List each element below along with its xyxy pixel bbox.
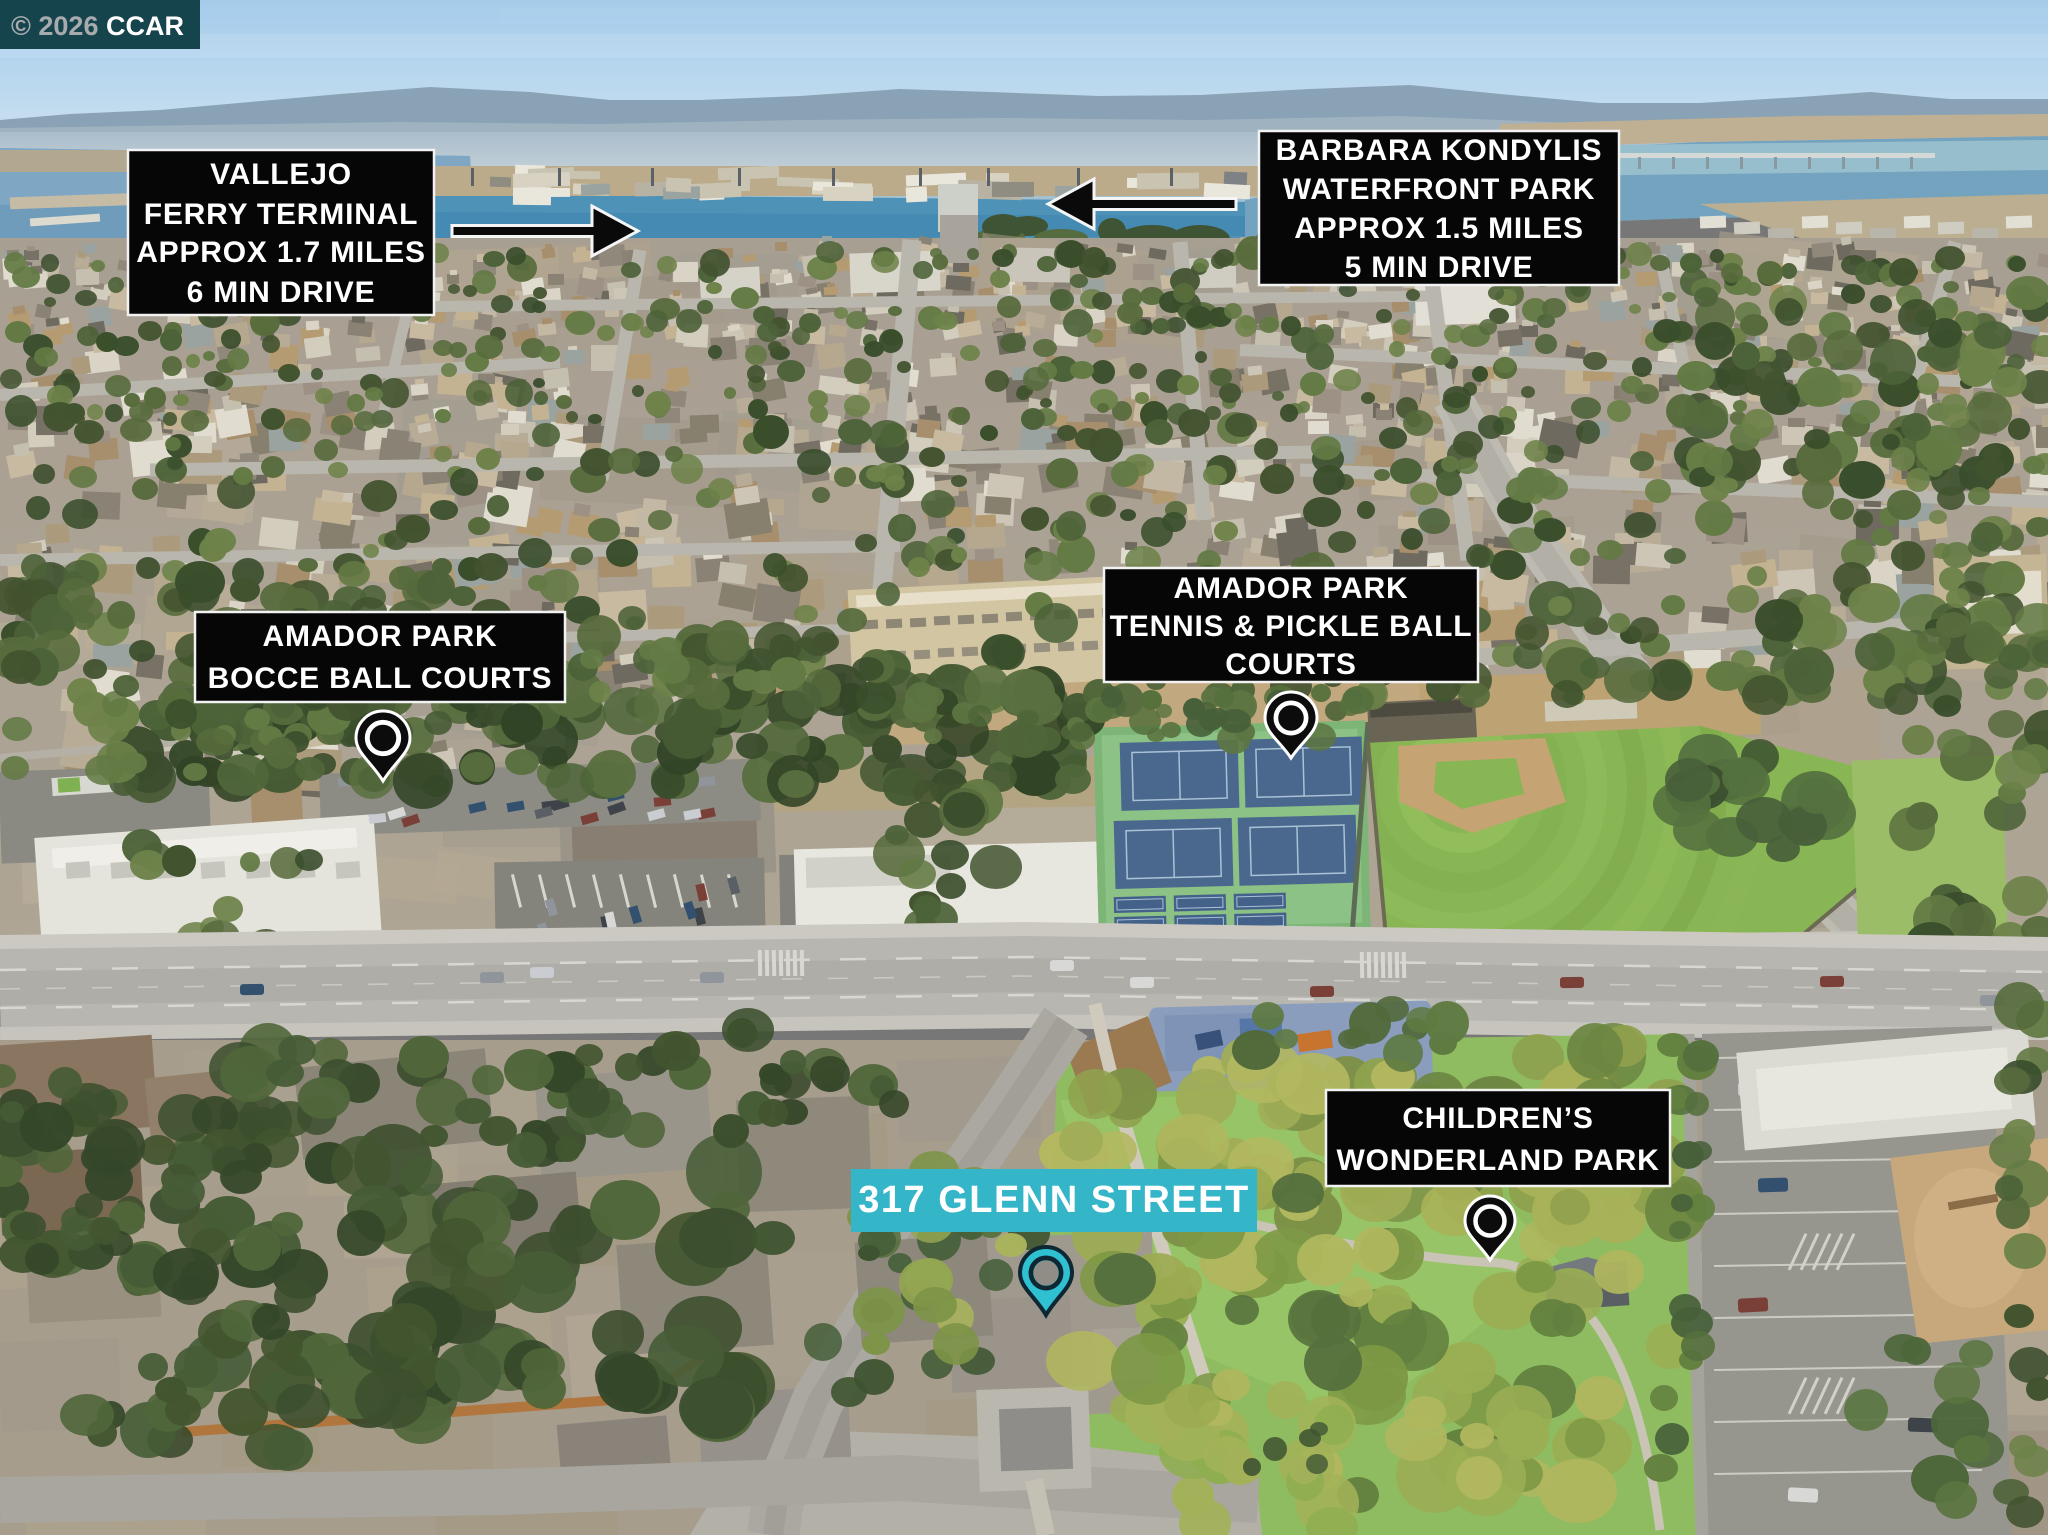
svg-text:BOCCE BALL COURTS: BOCCE BALL COURTS [208, 662, 553, 695]
svg-text:6 MIN DRIVE: 6 MIN DRIVE [187, 276, 376, 309]
svg-text:AMADOR PARK: AMADOR PARK [1174, 572, 1409, 605]
svg-text:CHILDREN’S: CHILDREN’S [1402, 1102, 1593, 1135]
svg-text:AMADOR PARK: AMADOR PARK [263, 620, 498, 653]
svg-text:FERRY TERMINAL: FERRY TERMINAL [144, 198, 419, 231]
svg-text:VALLEJO: VALLEJO [210, 158, 352, 191]
svg-text:TENNIS & PICKLE BALL: TENNIS & PICKLE BALL [1110, 610, 1473, 643]
svg-text:WONDERLAND PARK: WONDERLAND PARK [1336, 1144, 1659, 1177]
svg-text:317 GLENN STREET: 317 GLENN STREET [858, 1179, 1249, 1221]
svg-text:WATERFRONT PARK: WATERFRONT PARK [1283, 173, 1596, 206]
svg-text:BARBARA KONDYLIS: BARBARA KONDYLIS [1276, 134, 1603, 167]
svg-text:© 2026 CCAR: © 2026 CCAR [11, 11, 184, 41]
svg-text:APPROX 1.7 MILES: APPROX 1.7 MILES [136, 236, 426, 269]
svg-text:COURTS: COURTS [1225, 648, 1356, 681]
svg-text:APPROX 1.5 MILES: APPROX 1.5 MILES [1294, 212, 1584, 245]
svg-text:5 MIN DRIVE: 5 MIN DRIVE [1345, 251, 1534, 284]
